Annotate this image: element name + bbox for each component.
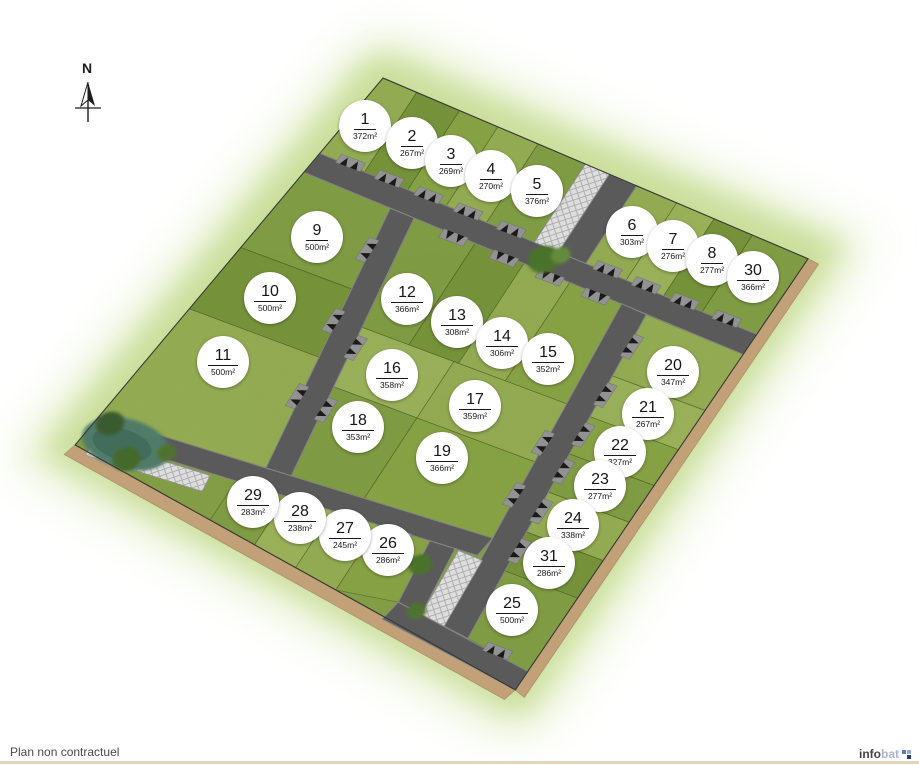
lot-area: 303m² [620,236,644,247]
north-label: N [82,60,92,76]
lot-number: 3 [440,146,463,165]
lot-area: 270m² [479,180,503,191]
lot-number: 23 [584,471,616,490]
lot-area: 277m² [588,490,612,501]
lot-badge-28: 28238m² [274,492,326,544]
lot-badge-9: 9500m² [291,211,343,263]
lot-area: 366m² [430,462,454,473]
logo-text-info: info [859,747,881,761]
lot-number: 22 [604,437,636,456]
lot-number: 1 [354,111,377,130]
lot-number: 21 [632,399,664,418]
lot-area: 286m² [537,567,561,578]
logo-text-bat: bat [881,747,899,761]
lot-badge-19: 19366m² [416,432,468,484]
lot-number: 28 [284,503,316,522]
lot-number: 30 [737,262,769,281]
lot-badges: 1372m²2267m²3269m²4270m²5376m²6303m²7276… [0,0,919,765]
lot-number: 12 [391,284,423,303]
lot-badge-4: 4270m² [465,150,517,202]
lot-number: 17 [459,391,491,410]
north-arrow: N [70,60,110,130]
lot-number: 15 [532,344,564,363]
lot-badge-5: 5376m² [511,165,563,217]
lot-number: 5 [526,176,549,195]
lot-badge-14: 14306m² [476,317,528,369]
disclaimer-text: Plan non contractuel [10,745,119,759]
lot-area: 353m² [346,431,370,442]
lot-number: 27 [329,520,361,539]
lot-number: 26 [372,535,404,554]
lot-area: 500m² [258,302,282,313]
lot-area: 267m² [636,418,660,429]
lot-area: 245m² [333,539,357,550]
lot-badge-12: 12366m² [381,273,433,325]
lot-area: 267m² [400,147,424,158]
lot-area: 376m² [525,195,549,206]
lot-number: 19 [426,443,458,462]
lot-badge-31: 31286m² [523,537,575,589]
lot-number: 4 [480,161,503,180]
lot-number: 8 [701,245,724,264]
lot-area: 283m² [241,506,265,517]
lot-number: 10 [254,283,286,302]
lot-badge-10: 10500m² [244,272,296,324]
lot-number: 25 [496,595,528,614]
lot-area: 308m² [445,326,469,337]
lot-badge-30: 30366m² [727,251,779,303]
lot-area: 366m² [741,281,765,292]
lot-area: 500m² [305,241,329,252]
lot-number: 9 [306,222,329,241]
lot-badge-27: 27245m² [319,509,371,561]
lot-badge-11: 11500m² [197,336,249,388]
logo-pixel-icon [902,750,911,759]
lot-area: 500m² [211,366,235,377]
lot-number: 2 [401,128,424,147]
lot-area: 359m² [463,410,487,421]
lot-area: 372m² [353,130,377,141]
lot-number: 7 [662,231,685,250]
lot-number: 29 [237,487,269,506]
footer-divider [0,761,919,764]
lot-area: 358m² [380,379,404,390]
lot-badge-17: 17359m² [449,380,501,432]
lot-badge-1: 1372m² [339,100,391,152]
lot-badge-16: 16358m² [366,349,418,401]
lot-number: 20 [657,357,689,376]
lot-number: 24 [557,510,589,529]
lot-area: 500m² [500,614,524,625]
lot-number: 13 [441,307,473,326]
lot-area: 286m² [376,554,400,565]
lot-area: 347m² [661,376,685,387]
lot-area: 277m² [700,264,724,275]
lot-number: 14 [486,328,518,347]
lot-area: 306m² [490,347,514,358]
lot-area: 276m² [661,250,685,261]
lot-number: 31 [533,548,565,567]
lot-area: 338m² [561,529,585,540]
site-plan-page: 1372m²2267m²3269m²4270m²5376m²6303m²7276… [0,0,919,765]
lot-number: 16 [376,360,408,379]
lot-number: 6 [621,217,644,236]
lot-badge-29: 29283m² [227,476,279,528]
lot-badge-25: 25500m² [486,584,538,636]
lot-number: 18 [342,412,374,431]
lot-area: 238m² [288,522,312,533]
infobat-logo: infobat [859,747,911,761]
lot-badge-15: 15352m² [522,333,574,385]
lot-badge-18: 18353m² [332,401,384,453]
lot-number: 11 [208,347,239,366]
lot-area: 269m² [439,165,463,176]
lot-area: 352m² [536,363,560,374]
lot-area: 366m² [395,303,419,314]
